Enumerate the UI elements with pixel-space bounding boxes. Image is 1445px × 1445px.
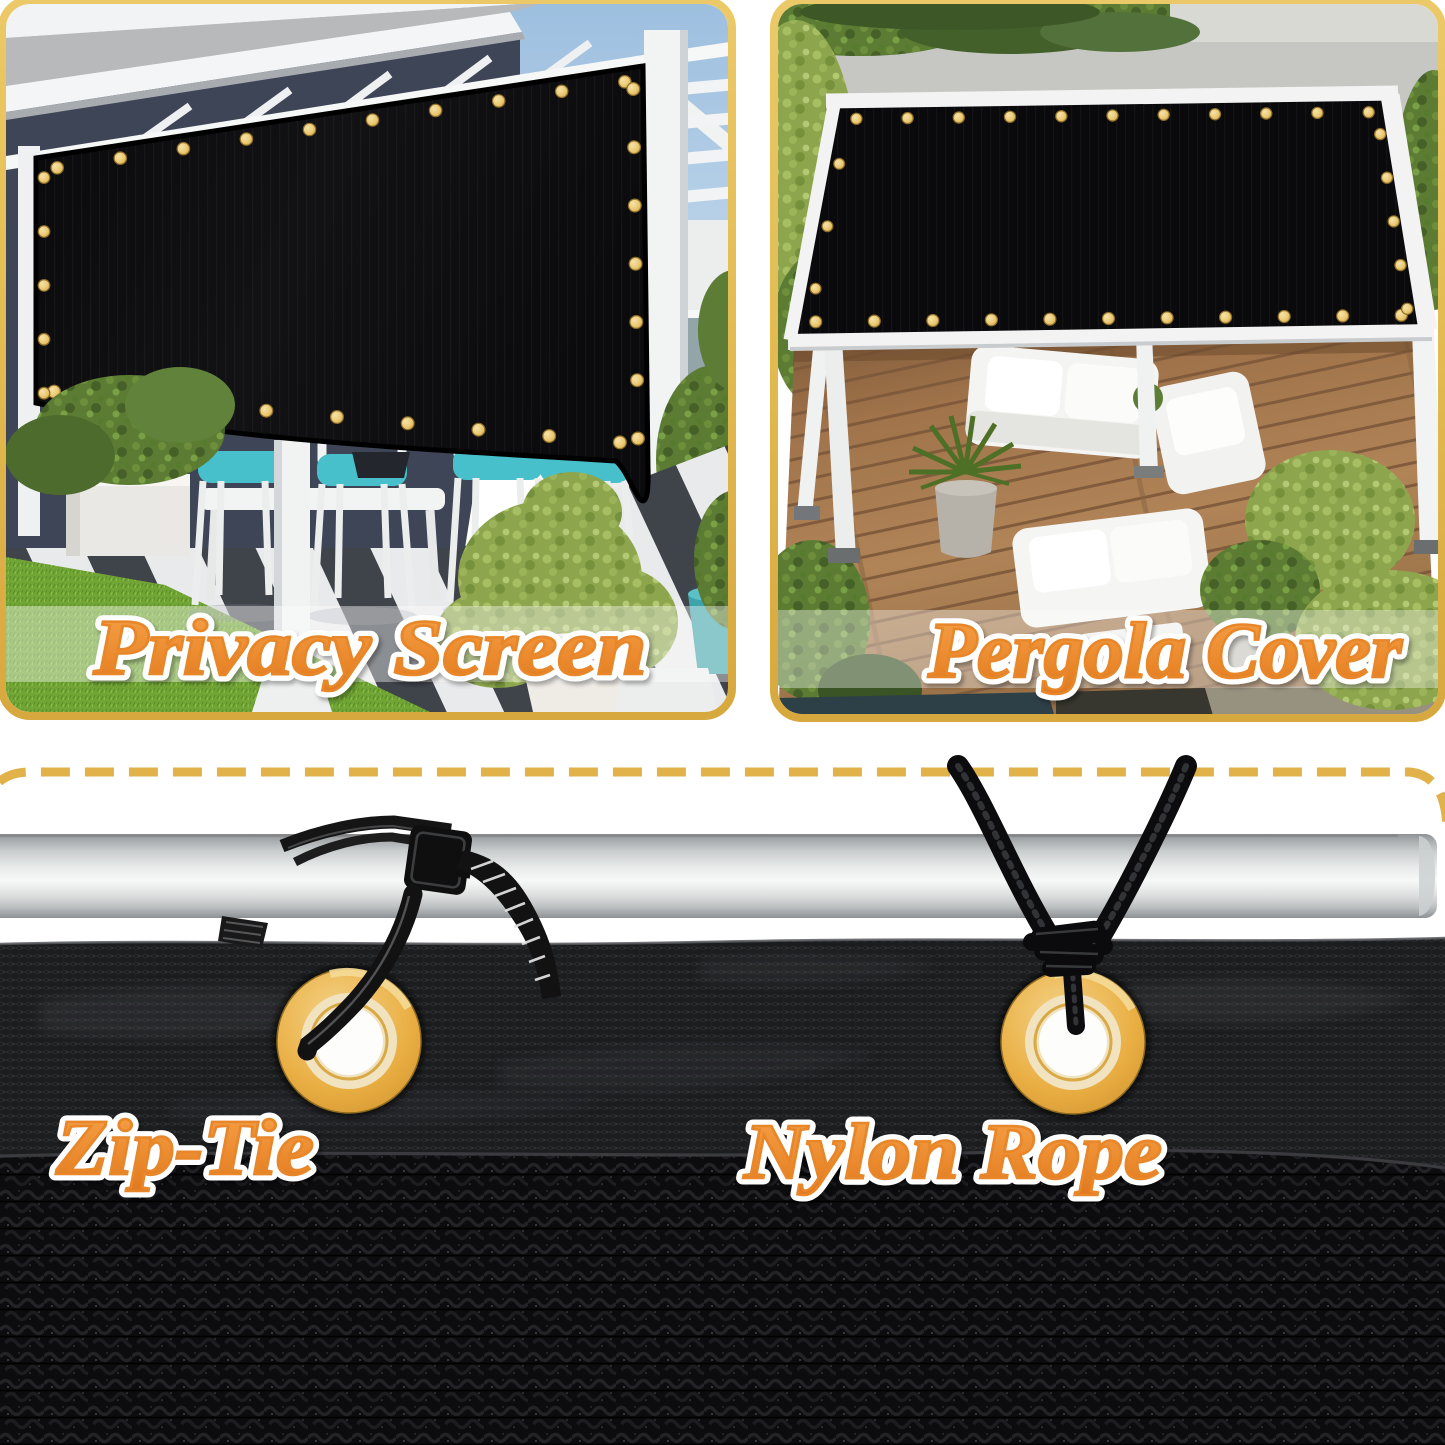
svg-text:Nylon Rope: Nylon Rope	[743, 1109, 1162, 1196]
svg-text:Zip-Tie: Zip-Tie	[55, 1105, 314, 1192]
svg-text:Privacy Screen: Privacy Screen	[92, 605, 646, 692]
svg-text:Pergola Cover: Pergola Cover	[927, 608, 1403, 695]
